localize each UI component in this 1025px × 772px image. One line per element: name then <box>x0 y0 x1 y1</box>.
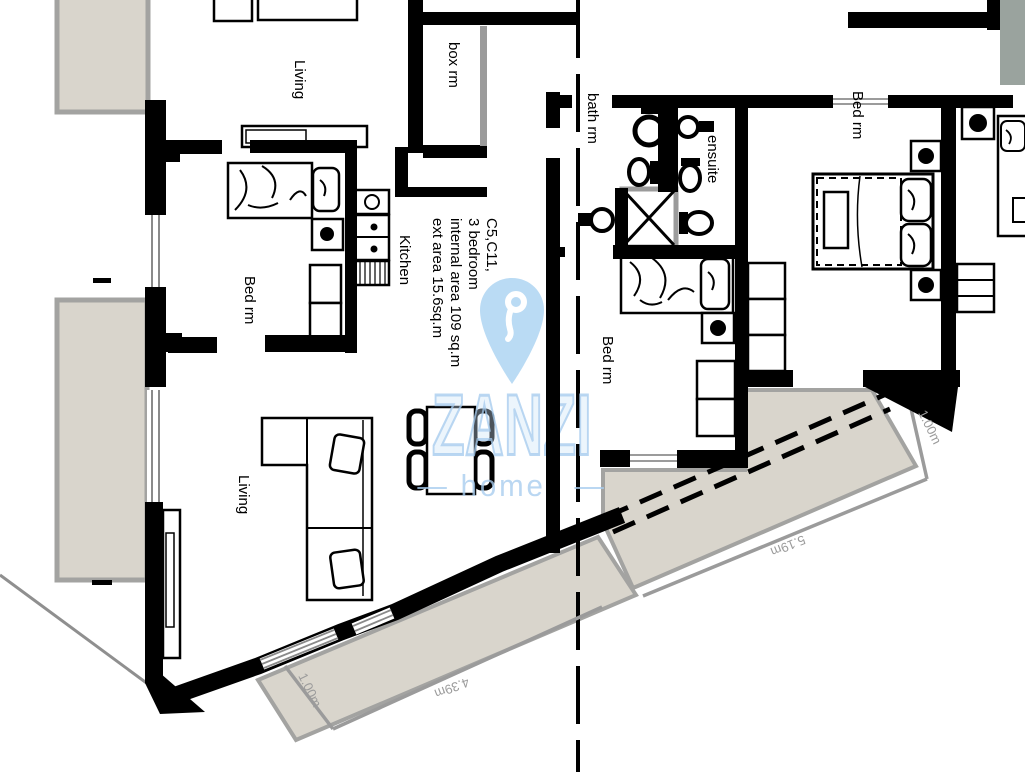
bed-left <box>228 163 339 218</box>
wall-segment <box>658 95 678 192</box>
floor-plan: ZANZI — homes — Living box rm bath rm en… <box>0 0 1025 772</box>
wall-segment <box>423 12 578 25</box>
wall-segment <box>145 502 163 683</box>
wall-segment <box>600 450 630 467</box>
sink-icon <box>678 117 698 137</box>
room-label-bed-rm-left: Bed rm <box>241 276 258 324</box>
wall-segment <box>677 450 743 468</box>
nightstand <box>312 219 343 250</box>
unit-external-area: ext area 15.6sq.m <box>428 218 446 367</box>
lift-shaft-block <box>1000 0 1025 85</box>
wardrobe-right <box>748 263 785 371</box>
room-label-living-top: Living <box>291 60 308 99</box>
sink-icon <box>591 209 613 231</box>
wall-segment <box>612 95 833 108</box>
wall-segment <box>168 337 217 353</box>
nightstand <box>702 313 734 343</box>
toilet-icon <box>629 159 649 185</box>
wall-segment <box>423 145 487 158</box>
site-boundary-line <box>0 575 152 687</box>
terrace-tick <box>93 278 111 283</box>
wall-segment <box>160 140 222 154</box>
room-label-kitchen: Kitchen <box>396 235 413 285</box>
chair <box>409 411 426 444</box>
partition-gray <box>480 26 487 146</box>
shaft <box>622 189 676 247</box>
bed-far-right <box>998 116 1025 236</box>
wall-segment <box>345 140 357 353</box>
wall-segment <box>848 12 1000 28</box>
wall-segment <box>546 158 560 553</box>
unit-description: C5,C11, 3 bedroom internal area 109 sq.m… <box>428 218 500 367</box>
room-label-ensuite: ensuite <box>704 135 721 183</box>
dining-table <box>427 407 475 494</box>
pillow <box>901 179 931 221</box>
sofa-top <box>214 0 357 21</box>
wall-segment <box>395 187 487 197</box>
room-label-box-rm: box rm <box>445 42 462 88</box>
wall-segment <box>613 245 735 259</box>
wardrobe-middle <box>697 361 735 436</box>
wall-segment <box>735 95 748 468</box>
window-bedroom-terrace <box>630 455 677 461</box>
wall-segment <box>555 247 565 257</box>
sofa-l-shaped <box>262 418 372 600</box>
wall-segment <box>265 335 353 352</box>
wall-segment <box>145 100 166 215</box>
wall-segment <box>941 95 956 388</box>
wall-segment <box>546 95 572 108</box>
room-label-bed-rm-right: Bed rm <box>849 91 866 139</box>
room-label-bed-rm-middle: Bed rm <box>599 336 616 384</box>
toilet-icon <box>686 212 712 234</box>
chair <box>409 452 426 488</box>
wall-segment <box>250 140 357 153</box>
terrace-top-left <box>57 0 148 112</box>
bed-right <box>813 174 933 269</box>
tv-unit <box>163 510 180 658</box>
unit-internal-area: internal area 109 sq.m <box>446 218 464 367</box>
shelving-unit <box>957 264 994 312</box>
chair <box>475 452 492 488</box>
wall-segment <box>615 188 628 247</box>
bed-middle <box>621 255 733 313</box>
wall-segment <box>987 0 1000 30</box>
unit-type: 3 bedroom <box>464 218 482 367</box>
toilet-icon <box>680 165 700 191</box>
dining-set <box>409 407 492 494</box>
wall-segment <box>748 370 793 387</box>
chair <box>475 411 492 444</box>
wall-segment <box>145 287 166 387</box>
pillow <box>901 224 931 266</box>
terrace-left <box>57 300 147 580</box>
room-label-bath-rm: bath rm <box>584 93 601 144</box>
bed-runner <box>824 192 848 248</box>
wall-segment <box>408 0 423 153</box>
room-label-living-main: Living <box>235 475 252 514</box>
terrace-tick <box>92 580 112 585</box>
unit-code: C5,C11, <box>482 218 500 367</box>
